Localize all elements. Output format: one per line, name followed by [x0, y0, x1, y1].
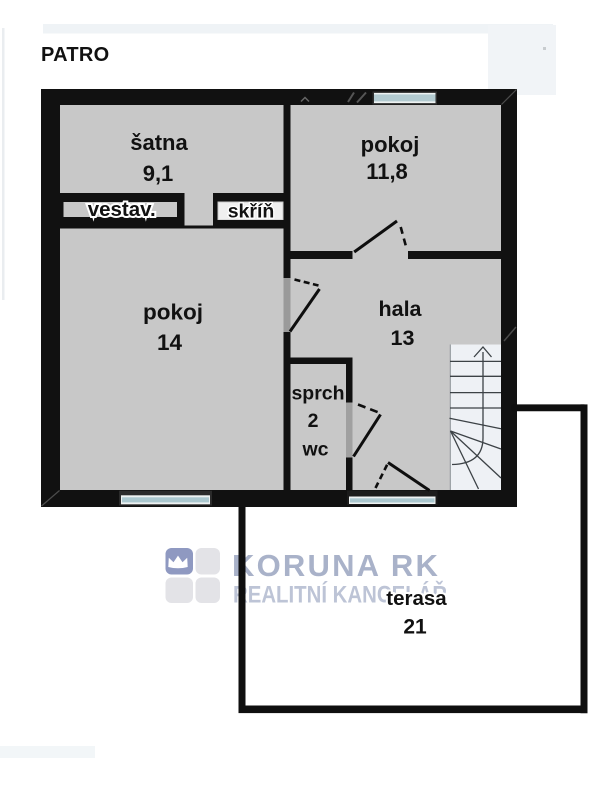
svg-text:2: 2: [308, 410, 319, 432]
svg-text:21: 21: [403, 616, 427, 639]
svg-text:14: 14: [157, 330, 183, 355]
svg-text:hala: hala: [378, 297, 422, 321]
svg-text:terasa: terasa: [386, 587, 447, 610]
svg-text:pokoj: pokoj: [143, 300, 203, 325]
svg-text:vestav.: vestav.: [88, 198, 156, 221]
svg-text:9,1: 9,1: [143, 161, 174, 186]
svg-text:11,8: 11,8: [366, 159, 408, 184]
svg-text:sprch: sprch: [291, 383, 344, 405]
svg-text:šatna: šatna: [130, 130, 188, 155]
svg-text:PATRO: PATRO: [41, 44, 110, 66]
svg-text:pokoj: pokoj: [361, 132, 420, 157]
svg-text:KORUNA RK: KORUNA RK: [232, 548, 440, 583]
svg-text:skříň: skříň: [228, 201, 275, 223]
svg-text:wc: wc: [301, 439, 328, 461]
svg-text:13: 13: [391, 326, 415, 350]
